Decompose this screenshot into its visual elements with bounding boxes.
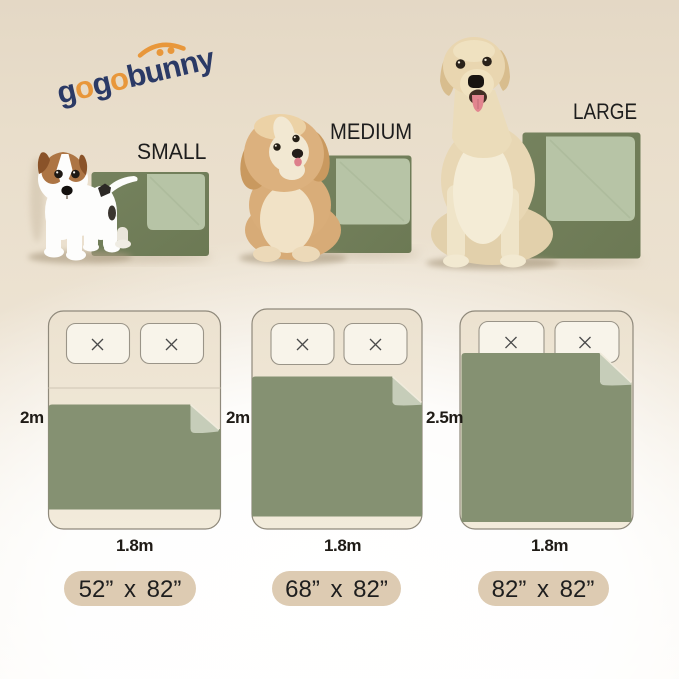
svg-text:gogobunny: gogobunny — [53, 40, 218, 110]
